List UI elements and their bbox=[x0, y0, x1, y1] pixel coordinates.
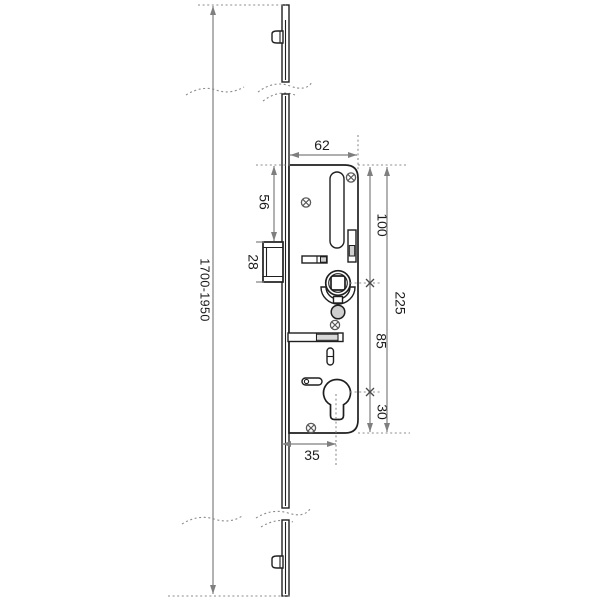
screw-symbol-upper-left bbox=[301, 198, 310, 207]
break-wavy-top-plate-2 bbox=[263, 93, 295, 101]
dim-56-label: 56 bbox=[256, 194, 272, 210]
arrow-left bbox=[290, 152, 299, 158]
horizontal-link bbox=[302, 378, 322, 385]
dimension-top-to-latch: 56 bbox=[256, 166, 277, 241]
break-wavy-bottom-left bbox=[182, 516, 242, 524]
arrow-down bbox=[384, 423, 390, 432]
dim-100-label: 100 bbox=[374, 213, 390, 237]
screw-symbol-mid bbox=[330, 320, 339, 329]
screw-symbol-bottom-left bbox=[306, 423, 315, 432]
locking-bar bbox=[302, 256, 327, 263]
dimension-latch-height: 28 bbox=[245, 242, 264, 282]
dim-62-label: 62 bbox=[314, 137, 330, 153]
dim-28-label: 28 bbox=[245, 254, 261, 270]
deadbolt bbox=[288, 333, 343, 342]
roller-cam-bottom bbox=[272, 556, 283, 568]
deadbolt-gray-section bbox=[317, 334, 339, 340]
arrow-down bbox=[271, 232, 277, 241]
break-wavy-top-left bbox=[186, 87, 244, 95]
dimension-backset: 35 bbox=[282, 441, 336, 463]
guide-slot bbox=[330, 172, 344, 248]
technical-drawing-canvas: 1700-1950 62 56 28 35 bbox=[0, 0, 600, 600]
arrow-down bbox=[210, 585, 216, 594]
locking-bar-gray-section bbox=[321, 257, 327, 262]
arrow-down bbox=[367, 423, 373, 432]
slider-element bbox=[348, 230, 356, 262]
arrow-up bbox=[271, 166, 277, 175]
break-wavy-top-plate-1 bbox=[258, 82, 312, 92]
arrow-up bbox=[210, 6, 216, 15]
dim-35-label: 35 bbox=[304, 447, 320, 463]
vertical-pin-slot bbox=[327, 348, 334, 365]
slider-gray-section bbox=[349, 246, 354, 257]
arrow-up bbox=[384, 167, 390, 176]
dim-total-label: 1700-1950 bbox=[198, 258, 212, 321]
screw-symbol-top-right bbox=[346, 173, 355, 182]
dimension-total-length: 1700-1950 bbox=[198, 6, 216, 594]
arrow-up bbox=[367, 167, 373, 176]
multipoint-lock-drawing: 1700-1950 62 56 28 35 bbox=[0, 0, 600, 600]
dim-30-label: 30 bbox=[374, 404, 390, 420]
break-wavy-bottom-plate-1 bbox=[256, 509, 310, 518]
latch-bolt bbox=[263, 242, 283, 282]
arrow-right bbox=[348, 152, 357, 158]
dimension-case-height: 225 bbox=[384, 167, 408, 432]
spindle-follower bbox=[326, 271, 351, 296]
arrow-right bbox=[327, 441, 336, 447]
roller-cam-top bbox=[272, 31, 283, 43]
dim-225-label: 225 bbox=[392, 291, 408, 315]
spring-pin-circle bbox=[331, 305, 345, 319]
dimension-case-width: 62 bbox=[290, 137, 357, 158]
